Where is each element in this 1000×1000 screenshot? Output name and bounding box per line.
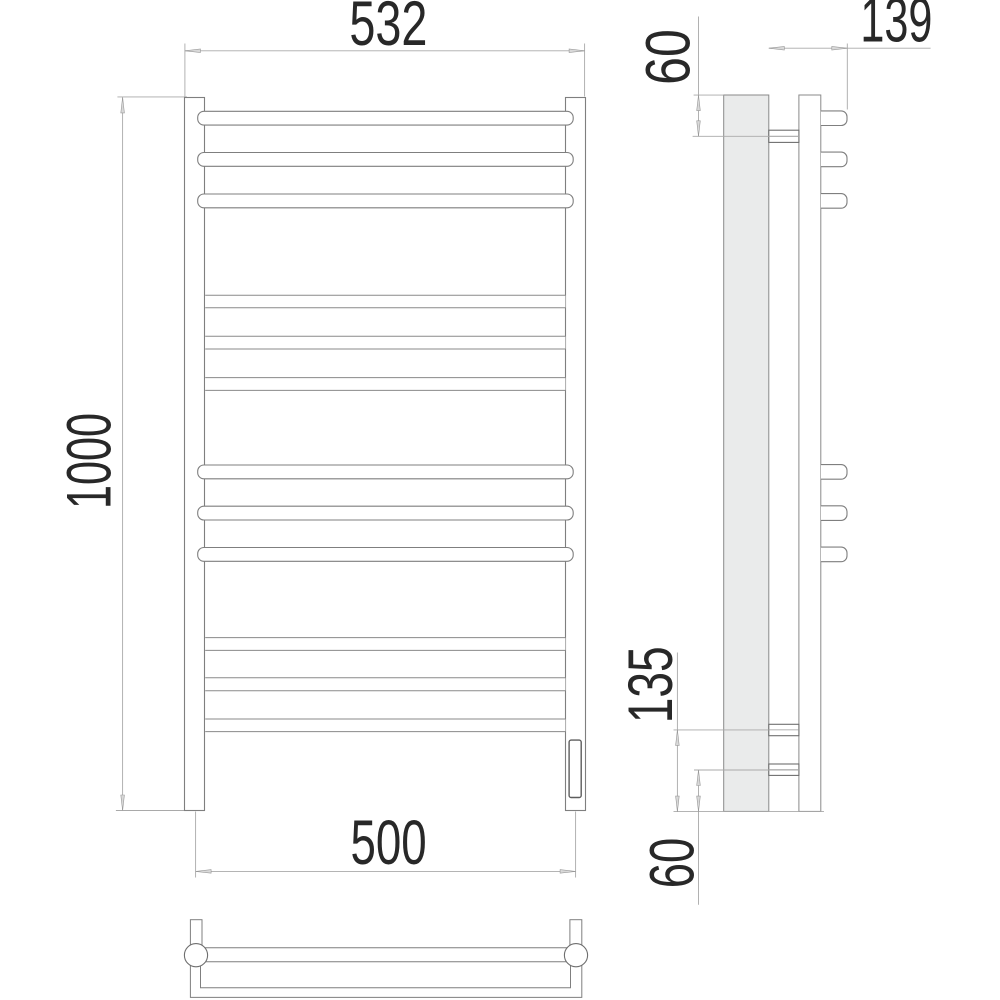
svg-text:135: 135 — [615, 646, 686, 723]
svg-text:139: 139 — [860, 0, 932, 56]
svg-text:60: 60 — [636, 838, 707, 888]
svg-text:60: 60 — [634, 29, 704, 85]
svg-text:500: 500 — [350, 807, 426, 878]
svg-text:532: 532 — [349, 0, 427, 59]
svg-text:1000: 1000 — [55, 413, 125, 509]
